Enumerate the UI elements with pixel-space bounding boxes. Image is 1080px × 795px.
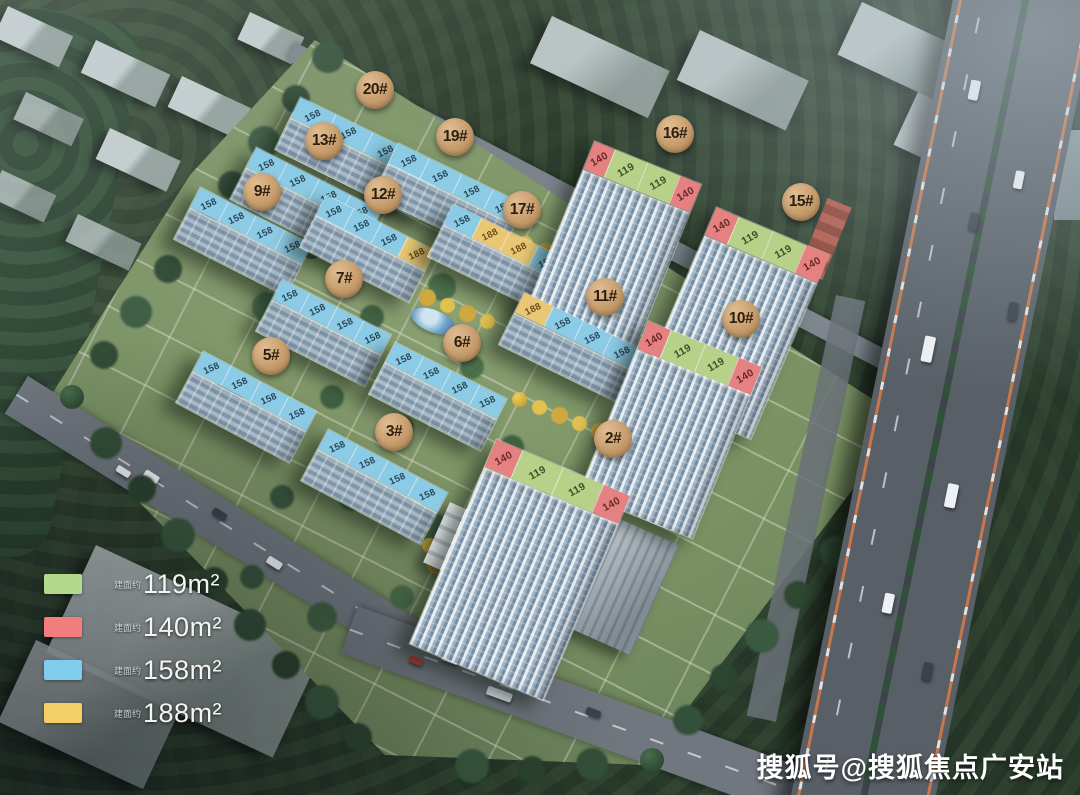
roof-unit-label: 158	[358, 454, 378, 471]
building-badge-16: 16#	[656, 115, 694, 153]
roof-unit-label: 188	[407, 245, 427, 262]
building-badge-3: 3#	[375, 413, 413, 451]
golden-tree-row	[512, 392, 527, 407]
roof-unit-label: 158	[199, 196, 219, 213]
roof-unit-label: 140	[711, 216, 733, 235]
roof-unit-label: 119	[648, 174, 669, 193]
roof-unit-label: 119	[615, 161, 636, 180]
roof-unit-label: 140	[600, 495, 622, 514]
roof-unit-label: 158	[418, 486, 438, 503]
roof-unit-label: 158	[352, 217, 372, 234]
building-badge-2: 2#	[594, 420, 632, 458]
roof-unit-label: 158	[612, 344, 632, 361]
roof-unit-label: 119	[773, 243, 794, 262]
building-badge-5: 5#	[252, 337, 290, 375]
roof-unit-label: 158	[336, 315, 356, 332]
legend-prefix: 建面约	[114, 707, 141, 720]
roof-unit-label: 140	[643, 330, 665, 350]
roof-unit-label: 158	[431, 168, 451, 185]
roof-unit-label: 158	[422, 365, 442, 382]
roof-unit-label: 119	[739, 228, 760, 247]
roof-unit-label: 140	[674, 184, 696, 204]
legend-row: 建面约 188m²	[44, 703, 222, 723]
legend-prefix: 建面约	[114, 664, 141, 677]
legend-swatch-119	[44, 574, 82, 594]
roof-unit-label: 119	[706, 355, 727, 374]
legend-row: 建面约 158m²	[44, 660, 222, 680]
building-badge-11: 11#	[586, 278, 624, 316]
roof-unit-label: 158	[259, 390, 279, 407]
roof-unit-label: 158	[394, 351, 414, 368]
building-badge-6: 6#	[443, 324, 481, 362]
roof-unit-label: 119	[672, 342, 693, 361]
building-badge-13: 13#	[305, 122, 343, 160]
legend-prefix: 建面约	[114, 621, 141, 634]
roof-unit-label: 158	[308, 301, 328, 318]
building-badge-17: 17#	[503, 191, 541, 229]
roof-unit-label: 158	[450, 379, 470, 396]
legend-area-label: 188m²	[143, 698, 222, 729]
roof-unit-label: 188	[481, 226, 501, 243]
legend-prefix: 建面约	[114, 578, 141, 591]
roof-unit-label: 158	[288, 172, 308, 189]
roof-unit-label: 140	[493, 449, 515, 468]
legend-swatch-158	[44, 660, 82, 680]
roof-unit-label: 158	[583, 329, 603, 346]
perimeter-trees	[640, 748, 664, 772]
roof-unit-label: 158	[231, 375, 251, 392]
roof-unit-label: 158	[462, 183, 482, 200]
unit-area-legend: 建面约 119m² 建面约 140m² 建面约 158m² 建面约 188m²	[44, 574, 222, 723]
roof-unit-label: 158	[328, 438, 348, 455]
roof-unit-label: 158	[325, 203, 345, 220]
building-badge-19: 19#	[436, 118, 474, 156]
building-badge-12: 12#	[364, 176, 402, 214]
legend-area-label: 119m²	[143, 569, 220, 600]
roof-unit-label: 188	[524, 301, 544, 318]
roof-unit-label: 158	[553, 315, 573, 332]
roof-unit-label: 140	[588, 150, 610, 170]
roof-unit-label: 158	[388, 470, 408, 487]
building-badge-10: 10#	[722, 300, 760, 338]
building-badge-9: 9#	[243, 173, 281, 211]
roof-unit-label: 119	[567, 480, 588, 499]
roof-unit-label: 188	[509, 240, 529, 257]
roof-unit-label: 158	[281, 287, 301, 304]
watermark: 搜狐号@搜狐焦点广安站	[757, 746, 1064, 785]
roof-unit-label: 119	[527, 463, 548, 482]
legend-row: 建面约 119m²	[44, 574, 222, 594]
roof-unit-label: 158	[363, 329, 383, 346]
aerial-site-plan: 1581581581581581581581581581581581581401…	[0, 0, 1080, 795]
roof-unit-label: 158	[257, 156, 277, 173]
roof-unit-label: 158	[452, 212, 472, 229]
building-badge-7: 7#	[325, 260, 363, 298]
legend-swatch-188	[44, 703, 82, 723]
building-badge-20: 20#	[356, 71, 394, 109]
roof-unit-label: 158	[478, 393, 498, 410]
legend-row: 建面约 140m²	[44, 617, 222, 637]
roof-unit-label: 158	[399, 152, 419, 169]
legend-area-label: 140m²	[143, 612, 222, 643]
roof-unit-label: 158	[202, 360, 222, 377]
roof-unit-label: 158	[227, 210, 247, 227]
building-badge-15: 15#	[782, 183, 820, 221]
roof-unit-label: 158	[288, 405, 308, 422]
roof-unit-label: 140	[801, 254, 823, 273]
perimeter-trees	[60, 385, 84, 409]
roof-unit-label: 140	[734, 367, 756, 387]
legend-swatch-140	[44, 617, 82, 637]
roof-unit-label: 158	[255, 224, 275, 241]
roof-unit-label: 158	[380, 231, 400, 248]
legend-area-label: 158m²	[143, 655, 222, 686]
